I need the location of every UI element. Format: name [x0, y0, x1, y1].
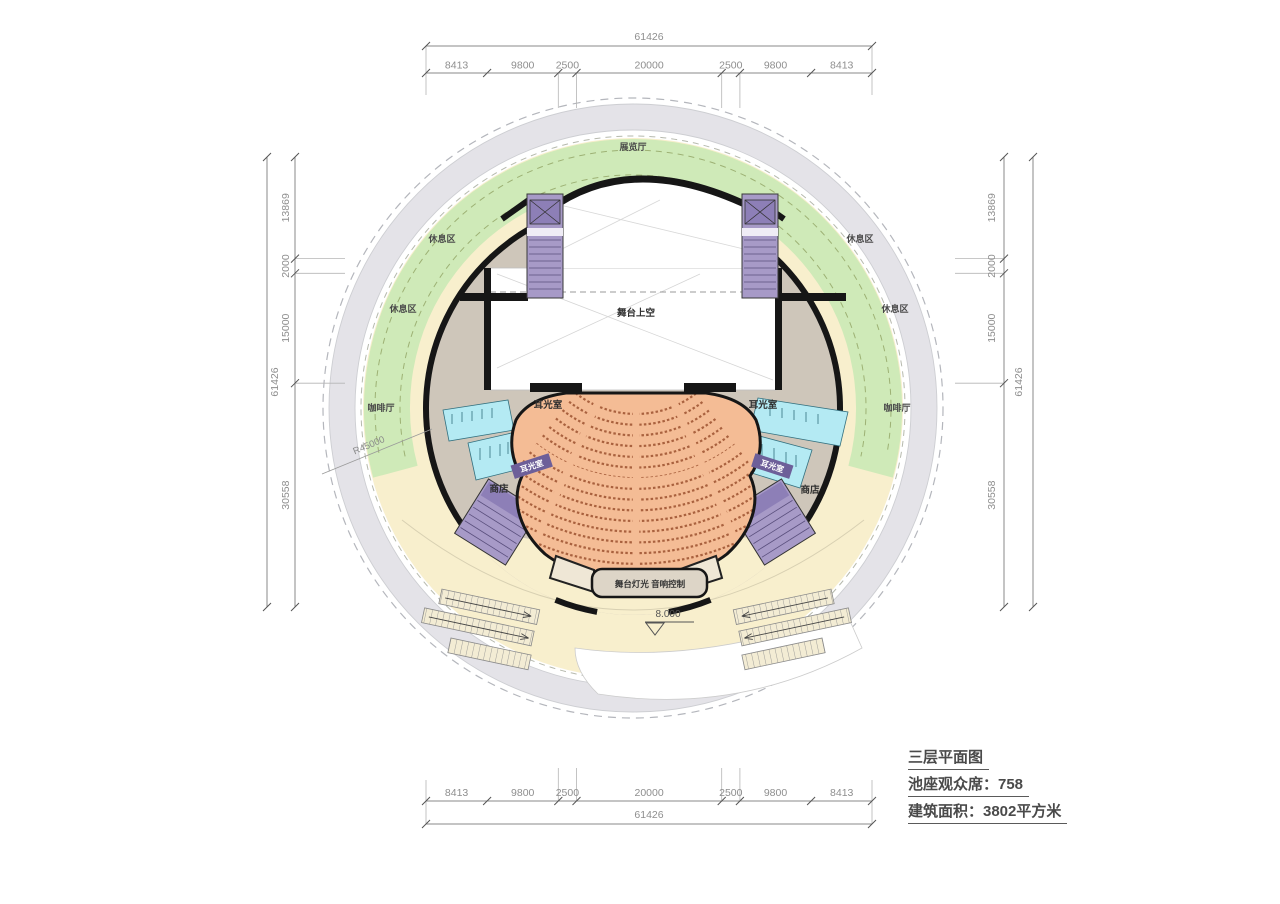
label-cafe-right: 咖啡厅	[883, 402, 910, 413]
dim-bottom-overall: 61426	[634, 809, 663, 821]
dim-top-seg-6: 8413	[830, 60, 854, 72]
label-exhibition-hall: 展览厅	[619, 141, 646, 152]
label-shop-left: 商店	[489, 483, 509, 495]
elevation-value: 8.000	[655, 609, 680, 620]
dim-left-overall: 61426	[269, 367, 281, 396]
dim-left-seg-1: 2000	[280, 254, 292, 278]
dim-right-overall: 61426	[1013, 367, 1025, 396]
dim-top-seg-4: 2500	[719, 60, 743, 72]
dim-right-seg-2: 15000	[986, 313, 998, 342]
label-shop-right: 商店	[800, 484, 820, 496]
dim-bottom-seg-0: 8413	[445, 787, 469, 799]
label-rest-area-1: 休息区	[427, 233, 455, 244]
dim-bottom-seg-3: 20000	[634, 787, 663, 799]
plan-title: 三层平面图	[908, 750, 989, 770]
dim-top-seg-2: 2500	[556, 60, 580, 72]
proscenium-wall-left	[530, 383, 582, 392]
dim-right-seg-0: 13869	[986, 193, 998, 222]
plan-floor-area: 建筑面积：3802平方米	[908, 804, 1067, 824]
dim-top-seg-0: 8413	[445, 60, 469, 72]
label-cafe-left: 咖啡厅	[367, 402, 394, 413]
label-ear-light-upper-left: 耳光室	[534, 399, 563, 411]
floor-plan-drawing: 舞台上空	[0, 0, 1280, 904]
dim-bottom-seg-6: 8413	[830, 787, 854, 799]
label-rest-area-4: 休息区	[880, 303, 908, 314]
label-stage-void: 舞台上空	[617, 307, 656, 319]
dim-right-seg-1: 2000	[986, 254, 998, 278]
dim-top-seg-3: 20000	[634, 60, 663, 72]
dim-top-overall: 61426	[634, 31, 663, 43]
proscenium-wall-right	[684, 383, 736, 392]
dim-bottom-seg-4: 2500	[719, 787, 743, 799]
label-control-booth: 舞台灯光 音响控制	[614, 579, 686, 589]
label-rest-area-3: 休息区	[845, 233, 873, 244]
floor-plan-page: 舞台上空	[0, 0, 1280, 904]
dim-bottom-seg-1: 9800	[511, 787, 535, 799]
dim-right-seg-3: 30558	[986, 480, 998, 509]
label-ear-light-upper-right: 耳光室	[749, 399, 778, 411]
dim-left-seg-3: 30558	[280, 480, 292, 509]
dim-left-seg-0: 13869	[280, 193, 292, 222]
dim-top-seg-5: 9800	[764, 60, 788, 72]
dim-bottom-seg-5: 9800	[764, 787, 788, 799]
dim-bottom-seg-2: 2500	[556, 787, 580, 799]
title-block: 三层平面图 池座观众席：758 建筑面积：3802平方米	[908, 750, 1067, 831]
label-rest-area-2: 休息区	[388, 303, 416, 314]
dim-left-seg-2: 15000	[280, 313, 292, 342]
plan-seat-count: 池座观众席：758	[908, 777, 1029, 797]
dim-top-seg-1: 9800	[511, 60, 535, 72]
